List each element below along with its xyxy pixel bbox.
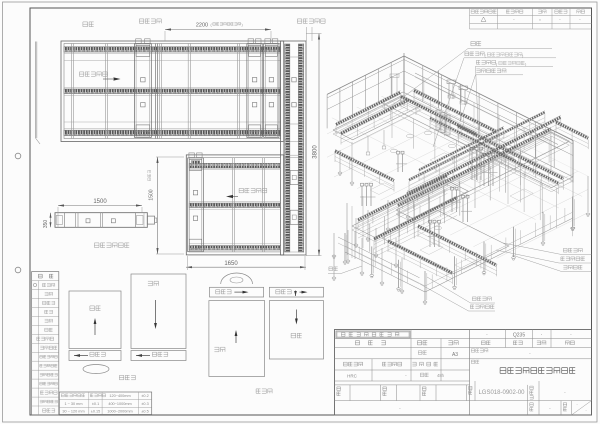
svg-text:·: · — [585, 408, 586, 413]
svg-text:1500: 1500 — [149, 189, 155, 200]
svg-text:1 ~ 30 mm: 1 ~ 30 mm — [64, 402, 82, 406]
svg-text:): ) — [242, 23, 243, 27]
svg-text:±0.3: ±0.3 — [141, 402, 148, 406]
svg-text:1650: 1650 — [224, 261, 238, 267]
svg-text:▪: ▪ — [539, 18, 540, 22]
svg-text:±0.1: ±0.1 — [92, 402, 99, 406]
svg-text:A3: A3 — [452, 352, 458, 358]
svg-text:·: · — [576, 402, 577, 407]
svg-text:HRC: HRC — [347, 374, 357, 379]
svg-text:LGS018-0902-00: LGS018-0902-00 — [478, 390, 525, 396]
svg-text:Q235: Q235 — [513, 332, 525, 338]
svg-text:1000~2000mm: 1000~2000mm — [107, 410, 132, 414]
svg-text:±0.15: ±0.15 — [91, 410, 100, 414]
svg-text:3800: 3800 — [313, 145, 319, 159]
svg-text:±0.2: ±0.2 — [141, 394, 148, 398]
svg-text:30 ~ 120 mm: 30 ~ 120 mm — [62, 410, 84, 414]
svg-text:±0.5: ±0.5 — [141, 410, 148, 414]
svg-text:120~400mm: 120~400mm — [109, 394, 130, 398]
svg-text:1500: 1500 — [93, 199, 107, 205]
svg-text:400~1000mm: 400~1000mm — [108, 402, 131, 406]
svg-text:2200: 2200 — [196, 23, 208, 29]
svg-text:350: 350 — [43, 220, 49, 229]
svg-text:48h: 48h — [437, 373, 445, 378]
